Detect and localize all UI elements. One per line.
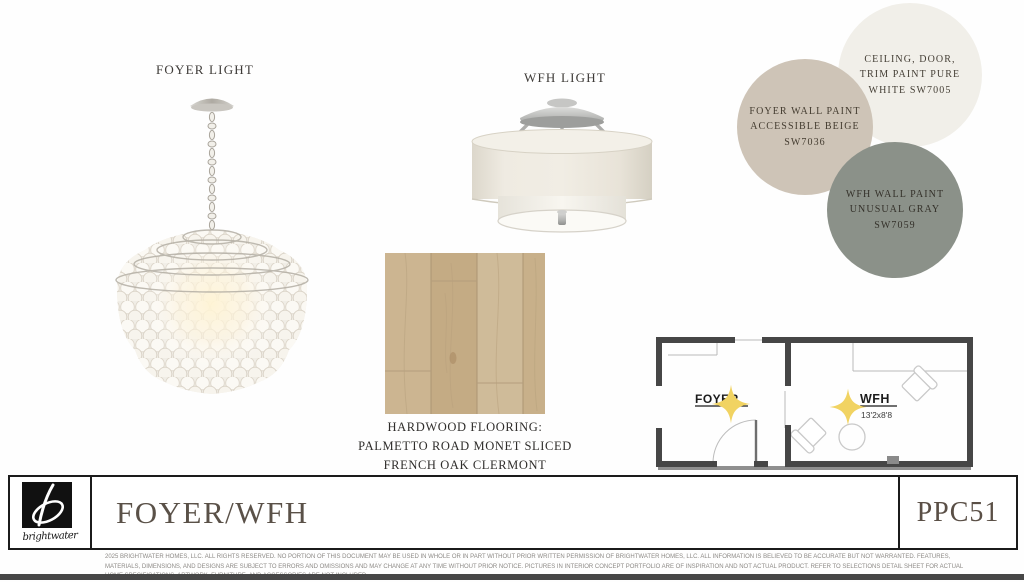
paint-swatch-line: UNUSUAL GRAY [827,202,963,218]
chandelier-chain [208,112,216,229]
wfh-light-image [452,94,672,242]
flooring-caption-line: FRENCH OAK CLERMONT [345,456,585,475]
flooring-caption-line: PALMETTO ROAD MONET SLICED [345,437,585,456]
paint-swatch-line: WFH WALL PAINT [827,187,963,203]
paint-swatch-line: SW7036 [737,135,873,151]
brightwater-logo-text: brightwater [11,530,89,544]
floorplan-wfh-dimensions: 13'2x8'8 [861,410,892,420]
legal-line: MATERIALS, DIMENSIONS, AND DESIGNS ARE S… [105,563,965,573]
paint-swatch-line: ACCESSIBLE BEIGE [737,119,873,135]
paint-swatch-line: SW7059 [827,218,963,234]
foyer-star-icon [712,385,750,423]
wfh-light-label: WFH LIGHT [455,70,675,86]
foyer-light-image [105,92,320,432]
flooring-caption: HARDWOOD FLOORING: PALMETTO ROAD MONET S… [345,418,585,474]
page-code: PPC51 [917,497,1000,529]
legal-line: 2025 BRIGHTWATER HOMES, LLC. ALL RIGHTS … [105,553,965,563]
flooring-swatch-image [385,253,545,414]
paint-swatch-line: TRIM PAINT PURE [838,67,982,83]
foyer-light-label: FOYER LIGHT [105,62,305,78]
fixture-mount [547,99,577,108]
fixture-finial [557,210,567,225]
chandelier-shells [117,230,307,394]
floorplan: FOYER WFH 13'2x8'8 [655,333,975,473]
page-title: FOYER/WFH [92,495,309,531]
paint-swatch-wfh-wall: WFH WALL PAINT UNUSUAL GRAY SW7059 [827,142,963,278]
brand-logo: brightwater [10,477,92,548]
flooring-caption-line: HARDWOOD FLOORING: [345,418,585,437]
paint-swatch-line: CEILING, DOOR, [838,52,982,68]
footer-bar: brightwater FOYER/WFH PPC51 [8,475,1018,550]
floorplan-door [713,420,756,463]
bottom-divider-band [0,574,1024,580]
paint-swatch-line: FOYER WALL PAINT [737,104,873,120]
brightwater-logo-icon [22,482,72,530]
fixture-outer-shade [472,130,652,207]
floorplan-window-notch [887,456,899,464]
floorplan-wfh-label: WFH [860,392,890,406]
